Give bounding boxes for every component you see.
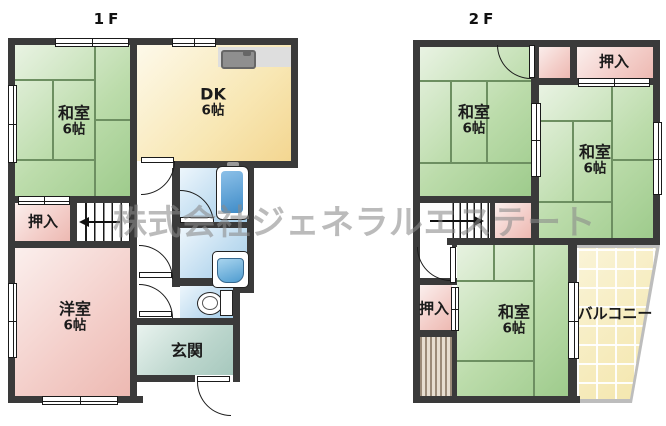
tatami-line [95,119,130,121]
tatami-line [572,120,574,203]
entry-door-leaf [197,376,230,382]
room-label-dk: DK 6帖 [200,85,226,118]
window-symbol [8,283,17,358]
sliding-door-symbol [578,78,650,87]
faucet-icon [243,51,251,56]
door-swing-icon [417,247,451,281]
window-symbol [172,38,216,47]
door-leaf [139,311,172,317]
room-label-oshiire-2f-w: 押入 [419,301,449,318]
wall [291,38,298,168]
tatami-line [611,85,613,238]
tatami-line [533,240,535,396]
room-label-oshiire-2f-n: 押入 [599,54,629,71]
tatami-line [457,360,534,362]
toilet-tank [220,290,233,316]
tatami-line [420,162,531,164]
window-symbol [653,122,662,195]
door-leaf [450,247,456,283]
washbasin-bowl [217,258,244,283]
tatami-line [613,159,653,161]
window-symbol [8,85,17,163]
tatami-line [420,80,531,82]
tatami-line [52,79,54,161]
door-leaf [529,45,535,78]
floor1-title: 1F [94,10,123,28]
floor-plan-canvas: 1F [0,0,666,426]
floor2-title: 2F [469,10,498,28]
wall [137,375,195,382]
roof-void-hatch [420,337,452,396]
tatami-line [493,240,495,282]
room-label-balcony: バルコニー [578,306,653,323]
room-label-oshiire-1f: 押入 [28,214,58,231]
stairs-arrowhead-icon [79,217,89,227]
landing-2f-top [537,47,570,78]
wall [8,38,298,45]
room-label-washitsu-2f-nw: 和室 6帖 [458,103,490,136]
tatami-line [450,80,452,164]
tatami-line [539,120,613,122]
room-label-washitsu-1f: 和室 6帖 [58,104,90,137]
toilet-seat [202,296,218,310]
room-label-genkan: 玄関 [171,342,203,360]
room-label-washitsu-2f-s: 和室 6帖 [498,303,530,336]
door-leaf [141,157,174,163]
window-symbol [42,396,118,405]
entry-door-swing-icon [197,382,231,416]
wall [413,40,660,47]
tatami-line [457,280,534,282]
wall [233,286,240,382]
wall [413,396,580,403]
watermark-text: 株式会社ジェネラルエステート [113,195,596,244]
sliding-door-symbol [451,287,459,331]
window-symbol [55,38,129,47]
sliding-door-symbol [531,103,541,177]
door-swing-icon [141,161,175,195]
wall [452,337,457,403]
room-label-washitsu-2f-e: 和室 6帖 [579,143,611,176]
room-label-youshitsu: 洋室 6帖 [59,300,91,333]
wall [137,318,233,325]
door-leaf [139,272,172,278]
sliding-door-symbol [18,196,70,205]
balcony-tile-grid [577,245,661,403]
tatami-line [15,159,95,161]
wall [247,161,298,168]
wall [413,330,457,337]
tatami-line [15,79,95,81]
